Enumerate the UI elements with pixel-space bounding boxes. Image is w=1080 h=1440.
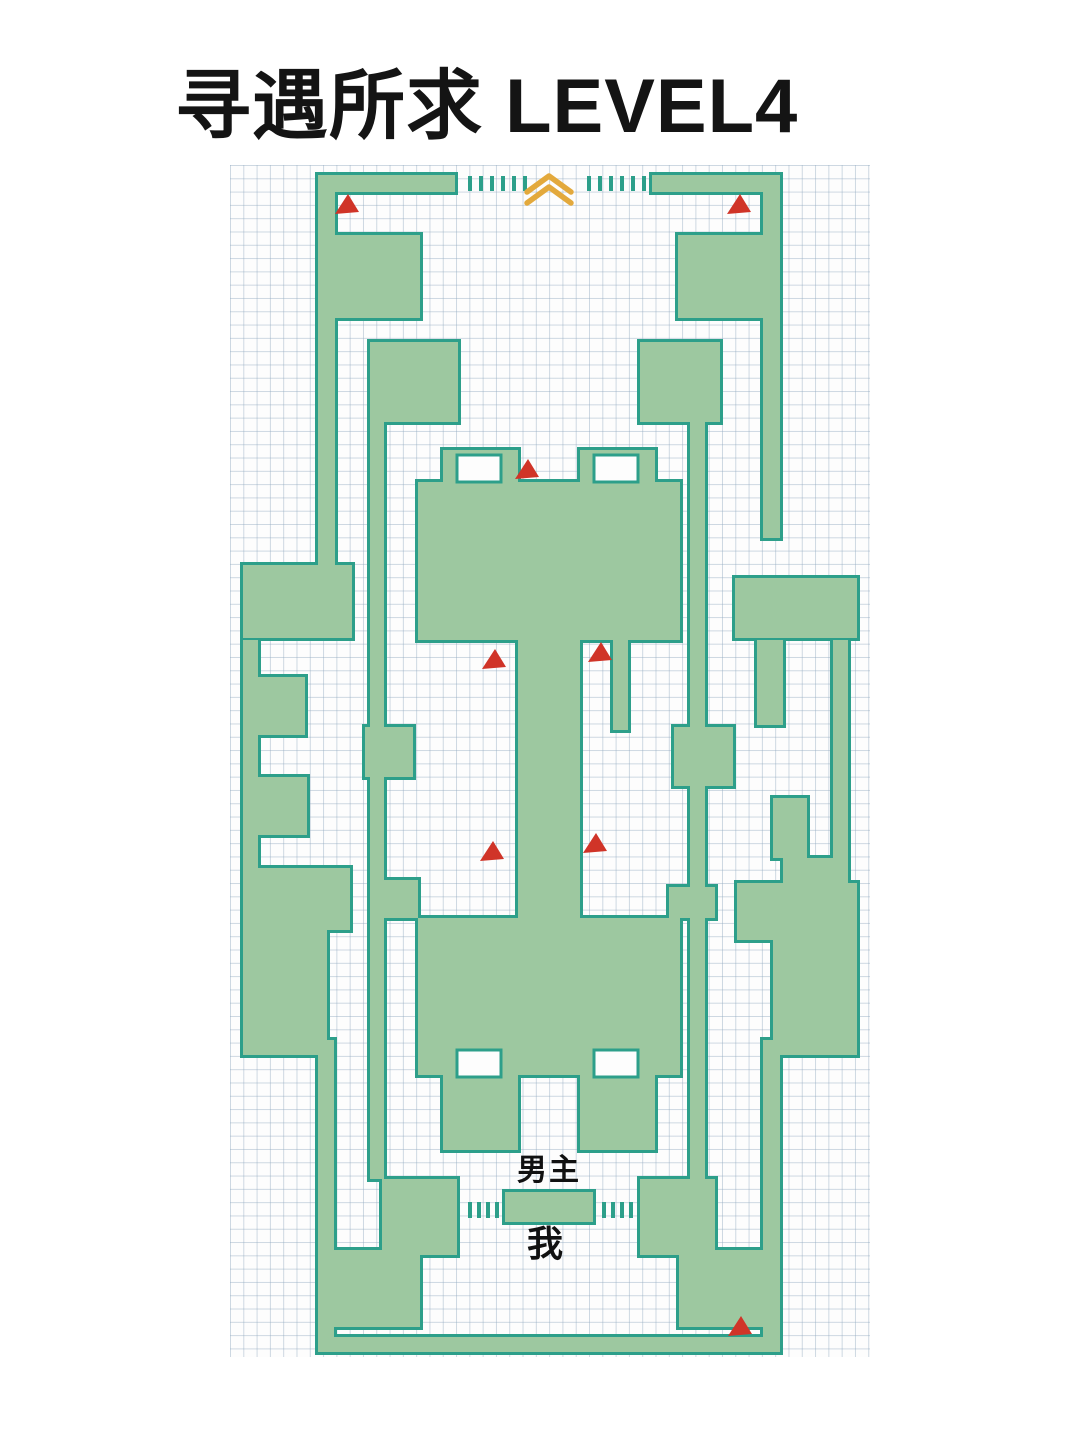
gate-tick-top	[642, 176, 646, 191]
marker-triangle-icon	[727, 194, 751, 214]
maze-wall	[763, 175, 780, 538]
maze-wall	[678, 235, 780, 318]
maze-wall	[640, 1179, 715, 1255]
maze-wall	[652, 175, 780, 192]
maze-wall	[613, 640, 628, 730]
gate-tick-bottom	[629, 1202, 633, 1218]
maze-wall	[580, 1075, 655, 1150]
gate-tick-bottom	[486, 1202, 490, 1218]
npc-label: 男主	[517, 1145, 581, 1189]
maze-wall	[365, 727, 413, 777]
gate-tick-top	[620, 176, 624, 191]
maze-wall	[757, 640, 783, 725]
maze-notch	[594, 1050, 638, 1077]
maze-wall	[735, 578, 857, 638]
maze-wall	[418, 482, 680, 640]
marker-triangle-icon	[583, 833, 607, 853]
maze-wall	[258, 777, 307, 835]
maze-wall	[318, 1040, 334, 1342]
gate-tick-bottom	[495, 1202, 499, 1218]
gate-tick-bottom	[468, 1202, 472, 1218]
gate-tick-bottom	[477, 1202, 481, 1218]
maze-notch	[457, 1050, 501, 1077]
maze-wall	[318, 175, 455, 192]
maze-wall	[443, 1075, 518, 1150]
gate-tick-top	[631, 176, 635, 191]
marker-triangle-icon	[588, 642, 612, 662]
maze-wall	[773, 918, 857, 1055]
gate-tick-top	[587, 176, 591, 191]
maze-wall	[640, 342, 720, 422]
maze-wall	[318, 235, 420, 318]
maze-wall	[669, 887, 715, 918]
gate-tick-top	[523, 176, 527, 191]
maze-notch	[594, 455, 638, 482]
marker-triangle-icon	[482, 649, 506, 669]
maze-wall	[773, 798, 807, 858]
level-map: 男主 我	[230, 165, 870, 1357]
walkthrough-page: 寻遇所求 LEVEL4 男主 我	[0, 0, 1080, 1440]
maze-wall	[258, 677, 305, 735]
gate-tick-bottom	[611, 1202, 615, 1218]
gate-tick-top	[501, 176, 505, 191]
maze-wall	[333, 1250, 420, 1327]
gate-tick-top	[479, 176, 483, 191]
maze-wall	[518, 640, 580, 918]
maze-notch	[457, 455, 501, 482]
page-title: 寻遇所求 LEVEL4	[175, 44, 798, 154]
gate-tick-bottom	[620, 1202, 624, 1218]
gate-tick-top	[468, 176, 472, 191]
gate-tick-top	[512, 176, 516, 191]
gate-tick-top	[609, 176, 613, 191]
gate-tick-bottom	[602, 1202, 606, 1218]
marker-triangle-icon	[480, 841, 504, 861]
marker-triangle-icon	[335, 194, 359, 214]
gate-tick-top	[490, 176, 494, 191]
maze-wall	[243, 565, 352, 638]
maze-wall	[243, 918, 327, 1055]
maze-wall	[384, 880, 418, 918]
maze-wall	[674, 727, 733, 786]
gate-tick-top	[598, 176, 602, 191]
maze-wall	[783, 858, 833, 883]
maze-wall	[382, 1179, 457, 1255]
maze-wall	[318, 1337, 780, 1352]
player-label: 我	[527, 1215, 563, 1267]
maze-wall	[679, 1250, 767, 1327]
